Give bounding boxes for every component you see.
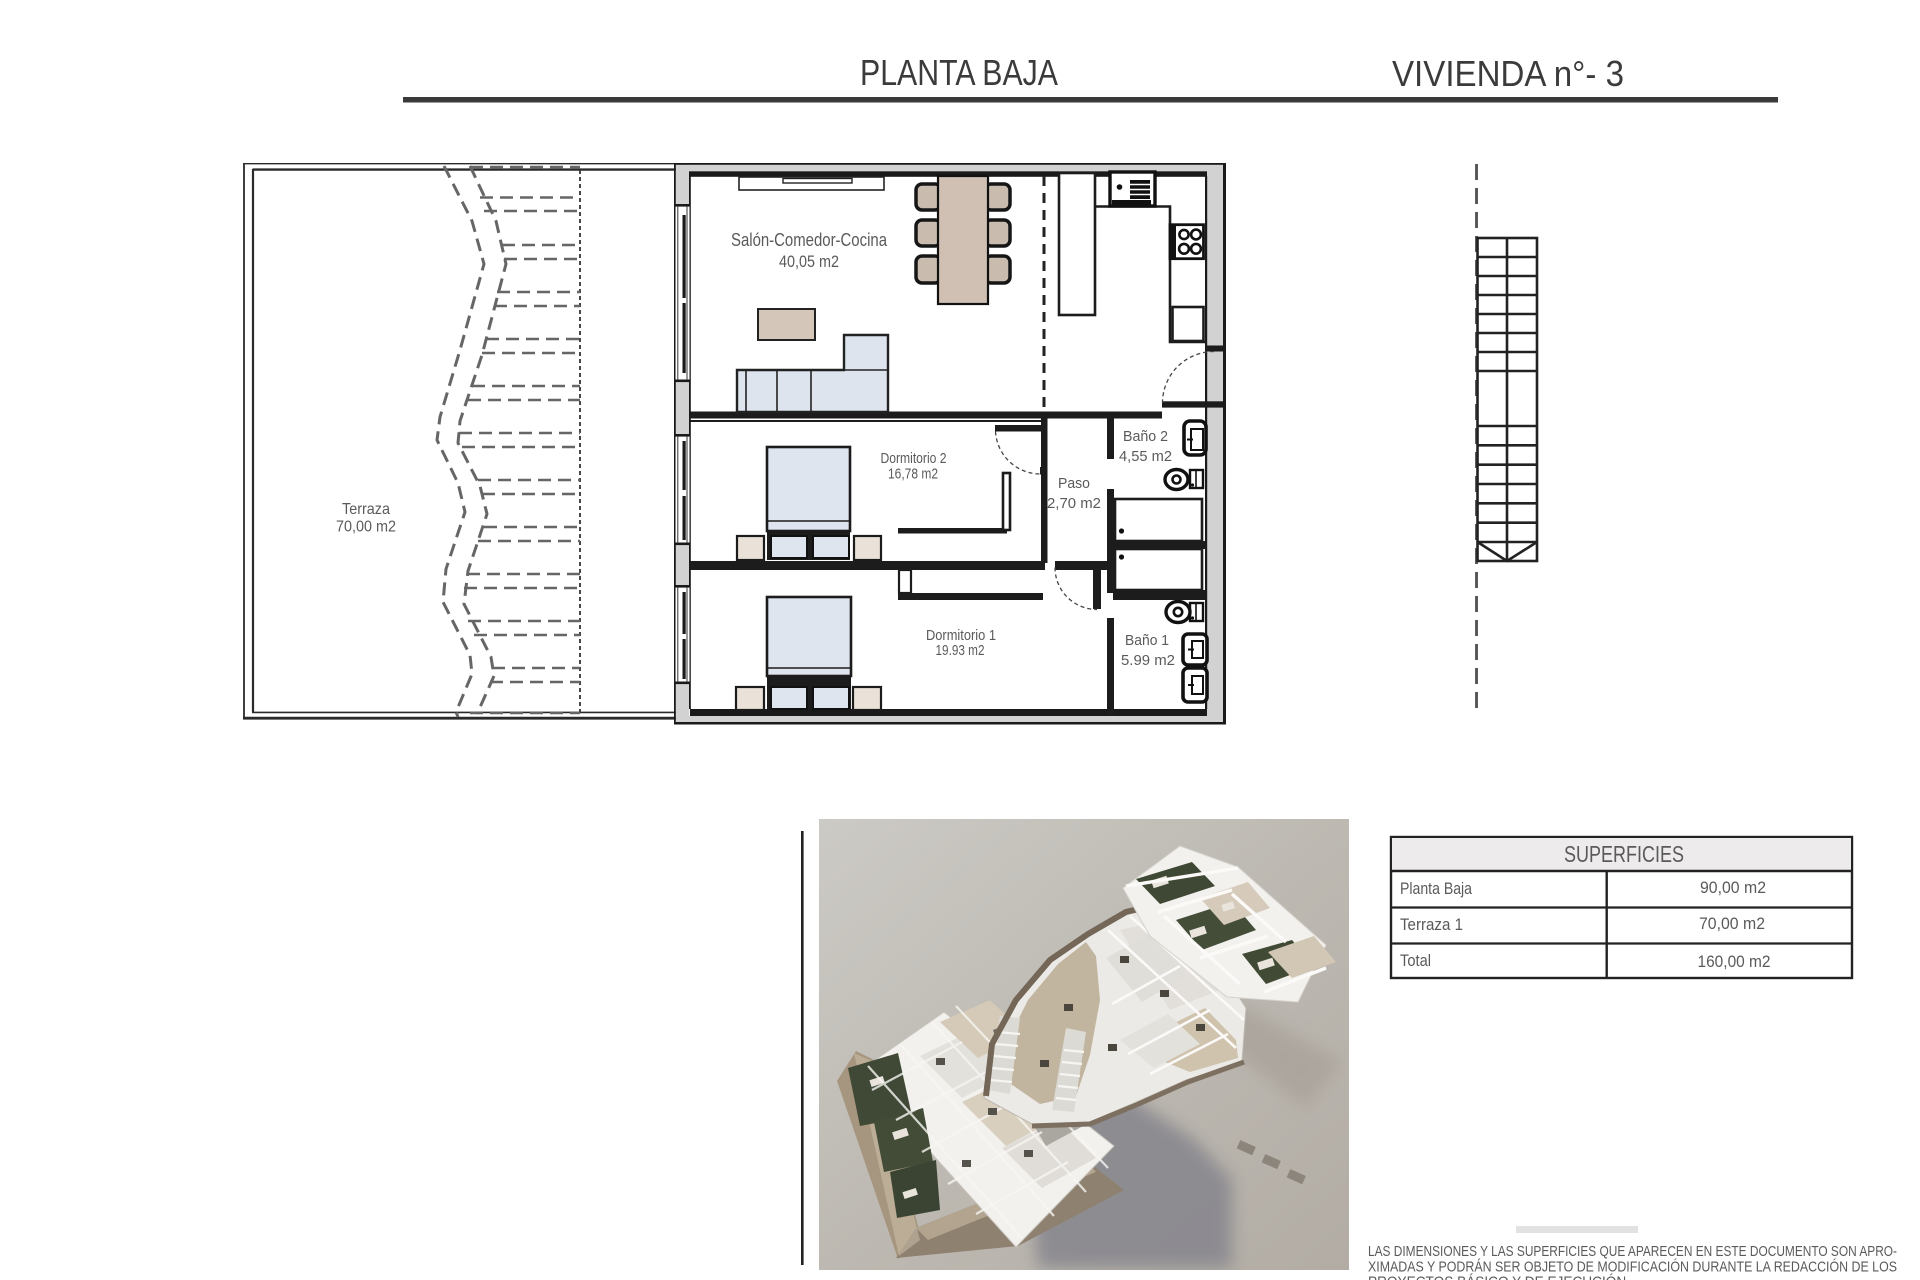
svg-text:SUPERFICIES: SUPERFICIES bbox=[1564, 841, 1684, 867]
svg-text:VIVIENDA n°- 3: VIVIENDA n°- 3 bbox=[1392, 53, 1624, 94]
svg-text:Baño 1: Baño 1 bbox=[1125, 633, 1169, 649]
svg-text:LAS DIMENSIONES Y LAS SUPERFIC: LAS DIMENSIONES Y LAS SUPERFICIES QUE AP… bbox=[1368, 1244, 1897, 1260]
svg-text:Dormitorio 2: Dormitorio 2 bbox=[881, 450, 947, 467]
svg-text:XIMADAS Y PODRÁN SER OBJETO DE: XIMADAS Y PODRÁN SER OBJETO DE MODIFICAC… bbox=[1368, 1258, 1897, 1275]
svg-text:5.99 m2: 5.99 m2 bbox=[1121, 653, 1175, 669]
svg-text:160,00 m2: 160,00 m2 bbox=[1698, 952, 1771, 971]
svg-text:Baño 2: Baño 2 bbox=[1123, 429, 1168, 445]
svg-text:Terraza: Terraza bbox=[342, 501, 390, 518]
svg-text:PLANTA BAJA: PLANTA BAJA bbox=[860, 52, 1058, 93]
svg-text:Paso: Paso bbox=[1058, 476, 1090, 492]
svg-text:90,00 m2: 90,00 m2 bbox=[1700, 878, 1766, 897]
svg-text:Salón-Comedor-Cocina: Salón-Comedor-Cocina bbox=[731, 229, 888, 250]
svg-text:Total: Total bbox=[1400, 951, 1431, 970]
svg-text:16,78 m2: 16,78 m2 bbox=[888, 466, 938, 483]
svg-text:PROYECTOS BÁSICO Y DE EJECUCIÓ: PROYECTOS BÁSICO Y DE EJECUCIÓN. bbox=[1368, 1274, 1630, 1280]
svg-text:Terraza 1: Terraza 1 bbox=[1400, 915, 1463, 934]
svg-text:19.93 m2: 19.93 m2 bbox=[936, 642, 985, 659]
svg-text:Planta Baja: Planta Baja bbox=[1400, 879, 1472, 898]
svg-text:70,00 m2: 70,00 m2 bbox=[336, 519, 396, 536]
svg-text:40,05 m2: 40,05 m2 bbox=[779, 252, 839, 271]
svg-text:70,00 m2: 70,00 m2 bbox=[1699, 914, 1765, 933]
svg-text:4,55 m2: 4,55 m2 bbox=[1119, 449, 1172, 465]
svg-text:2,70 m2: 2,70 m2 bbox=[1047, 496, 1101, 512]
